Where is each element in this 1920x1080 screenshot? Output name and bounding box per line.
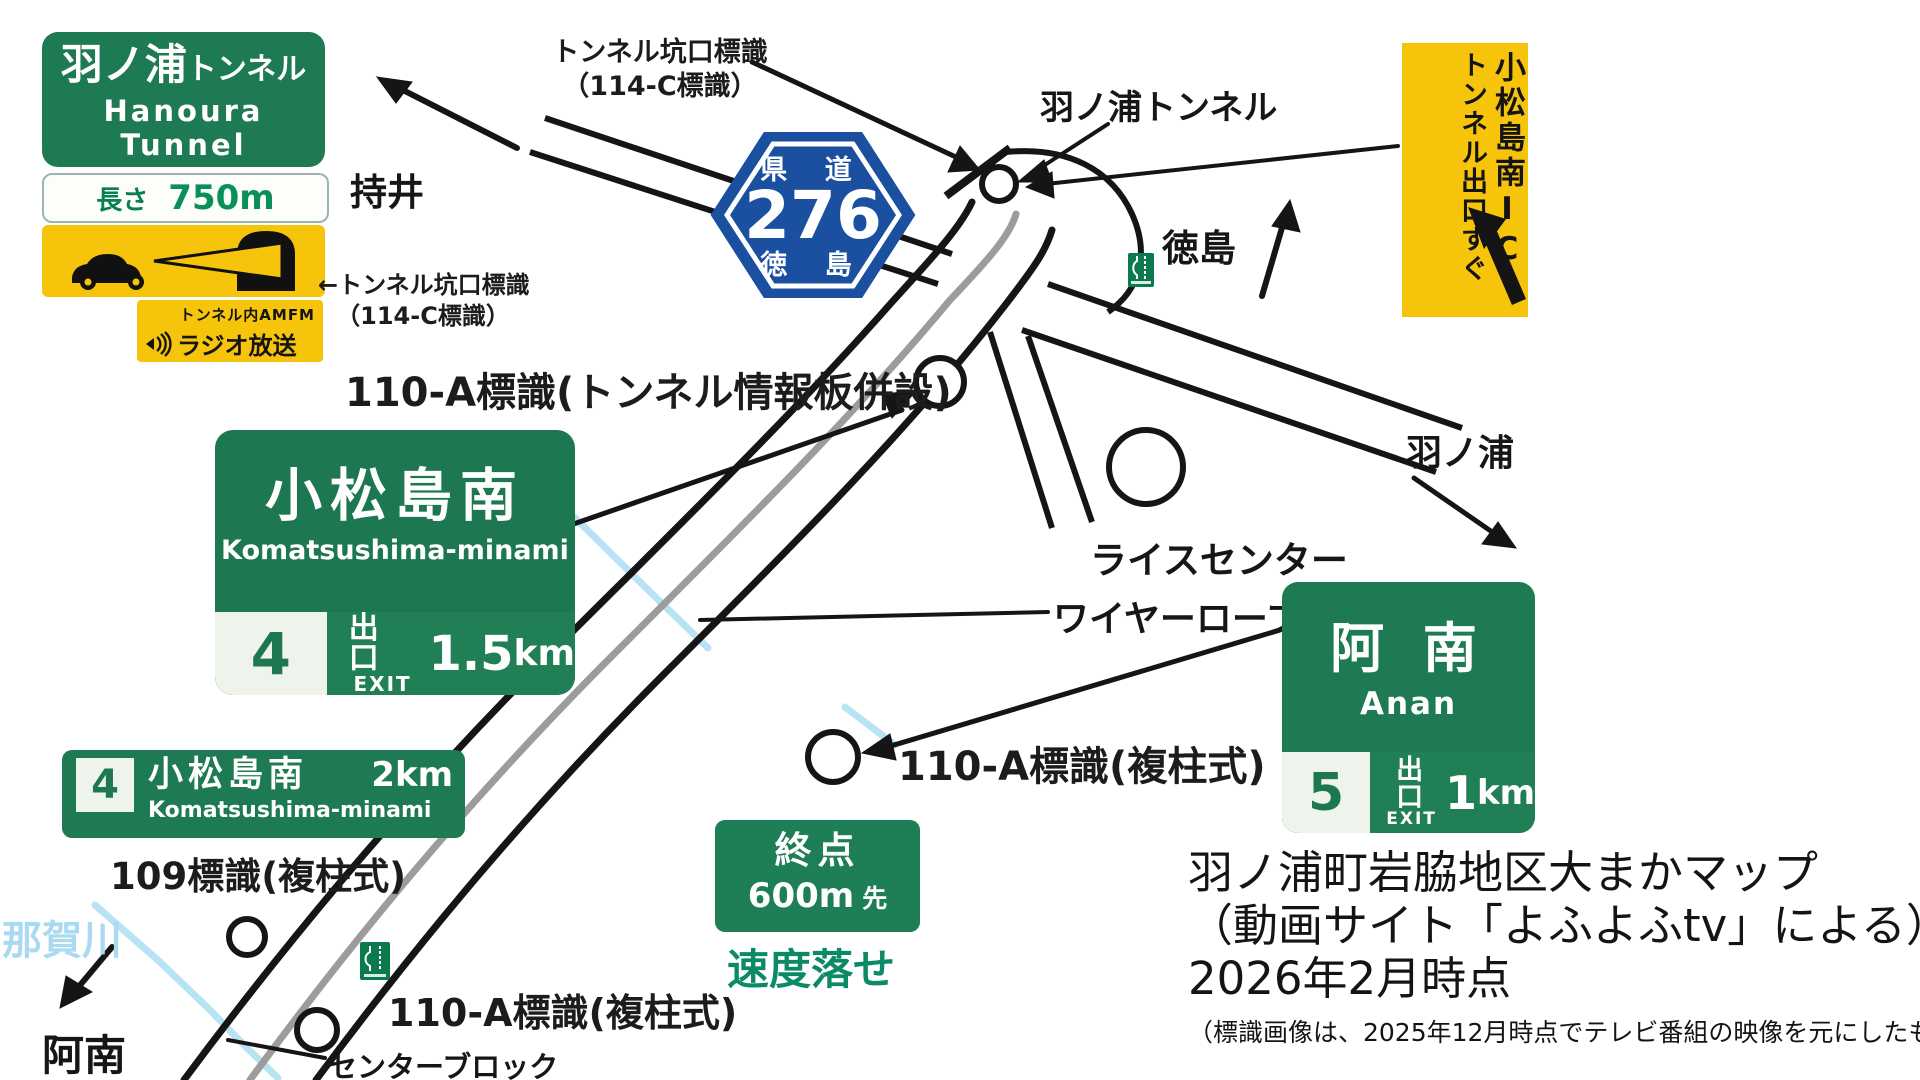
exit-name-en: Anan xyxy=(1282,686,1535,722)
terminus-distance: 600m先 xyxy=(715,879,920,913)
car-tunnel-lights-icon xyxy=(42,225,325,297)
mochii-arrow xyxy=(395,86,517,148)
exit-name-jp: 小松島南 xyxy=(215,468,575,525)
route-number: 276 xyxy=(744,177,882,254)
map-credit: 羽ノ浦町岩脇地区大まかマップ （動画サイト「よふよふtv」による） 2026年2… xyxy=(1188,846,1914,1049)
label-nakagawa-river: 那賀川 xyxy=(2,908,122,966)
label-center-block: センターブロック xyxy=(328,1044,558,1080)
length-value: 750m xyxy=(168,178,274,218)
exit-name-jp: 阿 南 xyxy=(1282,622,1535,676)
exit-distance: 1 km xyxy=(1445,752,1535,833)
radio-line1: トンネル内AMFM xyxy=(143,304,315,325)
label-rice-center: ライスセンター xyxy=(1090,530,1348,584)
exit-number-box: 5 xyxy=(1282,752,1370,833)
credit-line1: 羽ノ浦町岩脇地区大まかマップ xyxy=(1188,846,1914,899)
label-tokushima: 徳島 xyxy=(1162,218,1236,272)
label-anan-direction: 阿南 xyxy=(42,1022,126,1080)
credit-line3: 2026年2月時点 xyxy=(1188,952,1914,1005)
tunnel-name-en: Hanoura Tunnel xyxy=(42,94,325,162)
exit-word: 出口 EXIT xyxy=(1384,752,1439,833)
anan-exit-sign: 阿 南 Anan 5 出口 EXIT 1 km xyxy=(1282,582,1535,833)
credit-line4: （標識画像は、2025年12月時点でテレビ番組の映像を元にしたものです） xyxy=(1188,1013,1914,1049)
info-board-pointer xyxy=(562,410,902,528)
ic-exit-warning-sign: 小松島南IC トンネル出口すぐ xyxy=(1402,43,1528,317)
credit-line2: （動画サイト「よふよふtv」による） xyxy=(1188,899,1914,952)
tunnel-name-jp: 羽ノ浦トンネル xyxy=(42,32,325,86)
wire-rope-pointer xyxy=(700,612,1048,620)
length-label: 長さ xyxy=(96,180,148,217)
exit-distance: 1.5 km xyxy=(429,612,575,695)
exit-name-en: Komatsushima-minami xyxy=(148,798,453,823)
label-mochii: 持井 xyxy=(350,162,424,216)
map-canvas: 羽ノ浦トンネル Hanoura Tunnel 長さ 750m トンネル内AMFM… xyxy=(0,0,1920,1080)
tunnel-radio-sign: トンネル内AMFM ラジオ放送 xyxy=(137,300,323,362)
marker-110a-mid xyxy=(808,732,858,782)
lights-on-pictogram-sign xyxy=(42,225,325,297)
exit-number-box: 4 xyxy=(215,612,327,695)
speed-warning-text: 速度落せ xyxy=(700,936,922,997)
marker-rice-center xyxy=(1109,430,1183,504)
marker-portal-sign xyxy=(982,167,1016,201)
route-276-sign: 県 道 276 徳 島 xyxy=(703,122,923,308)
exit-distance: 2km xyxy=(371,758,453,792)
annotation-portal-sign-top: トンネル坑口標識 （114-C標識） xyxy=(530,36,790,104)
hanoura-tunnel-guide-sign: 羽ノ浦トンネル Hanoura Tunnel xyxy=(42,32,325,167)
route-prefecture: 徳 島 xyxy=(759,250,865,281)
cross-road-east xyxy=(990,284,1462,528)
annotation-110a-info-board: 110-A標識(トンネル情報板併設) xyxy=(345,360,952,418)
label-wire-rope: ワイヤーロープ xyxy=(1053,590,1302,642)
exit-name-en: Komatsushima-minami xyxy=(215,535,575,566)
exit-word: 出口 EXIT xyxy=(349,612,417,695)
annotation-109-sign: 109標識(複柱式) xyxy=(110,846,406,900)
ic-sign-pointer xyxy=(1046,146,1398,184)
radio-wave-icon xyxy=(143,331,173,357)
up-left-arrow-icon xyxy=(1460,201,1526,313)
label-hanoura-tunnel: 羽ノ浦トンネル xyxy=(1040,80,1277,129)
hanoura-arrow xyxy=(1414,478,1498,536)
radio-line2: ラジオ放送 xyxy=(177,326,297,361)
exit-number-box: 4 xyxy=(76,758,134,812)
annotation-110a-double-pillar-bottom: 110-A標識(複柱式) xyxy=(388,982,737,1037)
komatsushima-2km-sign: 4 小松島南 2km Komatsushima-minami xyxy=(62,750,465,838)
terminus-sign: 終点 600m先 xyxy=(715,820,920,932)
exit-name-jp: 小松島南 xyxy=(148,758,308,793)
annotation-110a-double-pillar-mid: 110-A標識(複柱式) xyxy=(898,734,1266,792)
tunnel-length-sign: 長さ 750m xyxy=(42,173,329,223)
terminus-title: 終点 xyxy=(715,832,920,869)
annotation-portal-sign-left: ←トンネル坑口標識 （114-C標識） xyxy=(318,270,528,332)
komatsushima-minami-exit-sign: 小松島南 Komatsushima-minami 4 出口 EXIT 1.5 k… xyxy=(215,430,575,695)
marker-109 xyxy=(229,919,265,955)
anan-sign-pointer xyxy=(884,630,1280,748)
label-hanoura: 羽ノ浦 xyxy=(1406,424,1514,476)
